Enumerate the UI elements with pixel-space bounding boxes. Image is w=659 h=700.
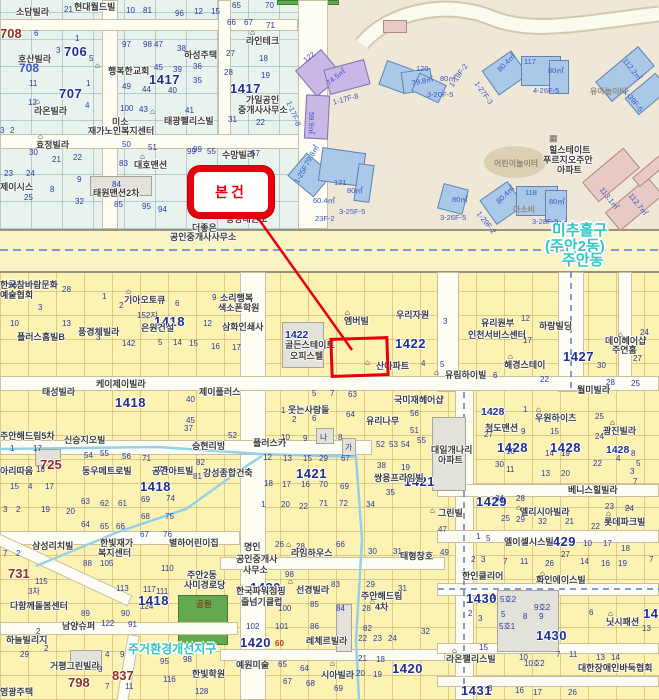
parcel-number: 40 xyxy=(168,87,177,95)
building-name-label: 우원하이츠 xyxy=(535,414,576,423)
building-name-label: 하랑빌딩 xyxy=(539,322,572,331)
parcel-number: 4 xyxy=(85,102,89,110)
parcel-number: 8 xyxy=(523,613,527,621)
parcel-number: 128 xyxy=(195,688,208,696)
parcel-number: 10 xyxy=(583,540,592,548)
parcel-number: 49 xyxy=(122,83,131,91)
parcel-number: 25 xyxy=(595,413,604,421)
parcel-number: 5 xyxy=(158,339,162,347)
parcel-number: 25 xyxy=(501,515,510,523)
parcel-number: 32 xyxy=(538,518,547,526)
parcel-number: 3 xyxy=(481,556,485,564)
unit-area-label: 23F-2 xyxy=(315,215,335,223)
parcel-number: 2 xyxy=(44,645,48,653)
building-name-label: 주안해드림 xyxy=(361,592,402,601)
parcel-number: 71 xyxy=(319,500,328,508)
parcel-number: 21 xyxy=(64,6,73,14)
parcel-number: 52 xyxy=(228,432,237,440)
parcel-number: 21 xyxy=(358,655,367,663)
parcel-number: 17 xyxy=(533,689,542,697)
parcel-number: 9호2 xyxy=(534,604,550,612)
parcel-number: 98 xyxy=(143,41,152,49)
parcel-number: 11 xyxy=(506,466,514,474)
park-label: 공원 xyxy=(196,600,212,609)
building-icon: ⌂ xyxy=(286,541,291,549)
building-name-label: 하늘빌리지 xyxy=(6,636,47,645)
building-name-label: 제이시스 xyxy=(0,183,33,192)
parcel-number: 12 xyxy=(521,315,530,323)
building-name-label: 공인중개사사무소 xyxy=(170,233,236,242)
building-icon: ⌂ xyxy=(150,108,155,116)
building-name-label: 아파트 xyxy=(557,166,582,175)
parcel-number: 7 xyxy=(3,550,7,558)
building-name-label: 대한장애인바둑협회 xyxy=(578,664,653,673)
parcel-number: 85 xyxy=(310,601,319,609)
building-name-label: 소리행복 xyxy=(220,294,253,303)
parcel-number: 55 xyxy=(207,148,216,156)
parcel-number: 18 xyxy=(259,55,268,63)
parcel-number: 2 xyxy=(468,610,472,618)
building-icon: ⌂ xyxy=(330,660,335,668)
unit-area-label: 59.9㎡ xyxy=(308,112,316,134)
parcel-number: 83 xyxy=(119,160,128,168)
parcel-number: 9 xyxy=(539,613,543,621)
building-name-label: 신승지오빌 xyxy=(64,436,105,445)
parcel-number: 5 xyxy=(312,390,316,398)
building-name-label: 사무소 xyxy=(243,566,268,575)
parcel-number: 26 xyxy=(8,282,17,290)
street xyxy=(437,484,659,497)
parcel-number: 3 xyxy=(630,468,634,476)
unit-area-label: 4-26F-5 xyxy=(533,87,559,95)
building-name-label: 시아빌라 xyxy=(321,671,354,680)
block-number: 1428 xyxy=(481,407,504,418)
parcel-number: 5 xyxy=(501,611,505,619)
parcel-number: 1 xyxy=(261,501,265,509)
parcel-number: 28 xyxy=(606,379,615,387)
parcel-number: 4 xyxy=(28,483,32,491)
building-name-label: 레체르빌라 xyxy=(306,637,347,646)
parcel-number: 54 xyxy=(401,441,410,449)
parcel-number: 14 xyxy=(173,339,182,347)
parcel-number: 65 xyxy=(100,523,109,531)
parcel-number: 100 xyxy=(278,605,291,613)
parcel-number: 101 xyxy=(275,623,288,631)
parcel-number: 6 xyxy=(175,300,179,308)
building-name-label: 승현리빙 xyxy=(192,442,225,451)
block-number-red: 798 xyxy=(68,676,90,689)
parcel-number: 6 xyxy=(589,609,593,617)
parcel-number: 52 xyxy=(376,441,385,449)
parcel-number: 94 xyxy=(158,206,167,214)
parcel-number: 15 xyxy=(211,8,220,16)
unit-area-label: 3-26F-5 xyxy=(440,214,466,222)
block-number: 1420 xyxy=(392,662,423,675)
building-icon: ⌂ xyxy=(95,62,100,70)
parcel-number: 4 xyxy=(616,455,620,463)
parcel-number: 18 xyxy=(376,656,385,664)
parcel-number: 29 xyxy=(20,651,29,659)
parcel-number: 19 xyxy=(401,464,410,472)
parcel-number: 27 xyxy=(633,355,642,363)
parcel-number: 115 xyxy=(35,578,48,586)
building-name-label: 푸르지오주안 xyxy=(543,156,593,165)
building-name-label: 웃는사람들 xyxy=(288,406,329,415)
building-name-label: 행복한교회 xyxy=(108,67,149,76)
building-icon: ⌂ xyxy=(610,419,615,427)
parcel-number: 2 xyxy=(471,556,475,564)
building-icon: ⌂ xyxy=(452,647,457,655)
building-name-label: 힐스테이트 xyxy=(549,146,590,155)
building-name-label: 광진빌라 xyxy=(603,427,636,436)
parcel-number: 7 xyxy=(105,683,109,691)
cadastral-map-canvas[interactable]: 소담빌라현대월드빌호산빌라행복한교회하성주택라온빌라미소재가노인복지센터태광펠리… xyxy=(0,0,659,700)
parcel-number: 25 xyxy=(631,380,640,388)
parcel-number: 152지 xyxy=(137,312,158,320)
parcel-number: 15 xyxy=(550,428,559,436)
building-name-label: 대호맨션 xyxy=(134,161,167,170)
block-number: 1421 xyxy=(296,467,327,480)
building-name-label: 주안해드림5차 xyxy=(0,432,55,441)
building-icon: ⌂ xyxy=(536,406,541,414)
parcel-number: 63 xyxy=(81,498,90,506)
building-name-label: 기아오토큐 xyxy=(124,296,165,305)
parcel-number: 15 xyxy=(479,644,488,652)
building-name-label: 아리따움 xyxy=(0,467,33,476)
street xyxy=(618,272,632,378)
building-icon: ⌂ xyxy=(625,503,630,511)
building-name-label: 한빛학원 xyxy=(192,670,225,679)
parcel-number: 24 xyxy=(388,635,397,643)
parcel-number: 71 xyxy=(142,455,151,463)
parcel-number: 13 xyxy=(283,455,292,463)
parcel-number: 81 xyxy=(193,473,202,481)
building-name-label: 라온팰리스빌 xyxy=(446,655,496,664)
building-name-label: 효정빌라 xyxy=(36,141,69,150)
parcel-number: 5호1 xyxy=(499,623,515,631)
unit-area-label: 80㎡ xyxy=(347,187,363,195)
building-name-label: 그린빌 xyxy=(438,509,463,518)
building-name-label: 케이제이빌라 xyxy=(96,380,146,389)
building-name-label: 은원건설 xyxy=(141,324,174,333)
parcel-number: 22 xyxy=(591,523,600,531)
block-number: 1422 xyxy=(395,337,426,350)
parcel-number: 17 xyxy=(33,445,42,453)
building-name-label: 사미경로당 xyxy=(184,581,225,590)
parcel-number: 13 xyxy=(596,654,605,662)
building-name-label: 현대월드빌 xyxy=(74,3,115,12)
block-number: 1417 xyxy=(230,82,261,95)
parcel-number: 28 xyxy=(516,495,525,503)
parcel-number: 36 xyxy=(193,63,202,71)
parcel-number: 5 xyxy=(486,535,490,543)
parcel-number: 1 xyxy=(491,593,495,601)
parcel-number: 21 xyxy=(52,156,61,164)
building-name-label: 색소폰학원 xyxy=(218,304,259,313)
building-name-label: 공인중개사 xyxy=(236,555,277,564)
parcel-number: 10 xyxy=(126,7,135,15)
parcel-number: 98 xyxy=(183,656,192,664)
building-name-label: 유림하이빌 xyxy=(445,371,486,380)
parcel-number: 69 xyxy=(334,685,343,693)
parcel-number: 10호2 xyxy=(524,660,545,668)
parcel-number: 22 xyxy=(256,119,265,127)
parcel-number: 7 xyxy=(503,558,507,566)
unit-area-label: 80㎡ xyxy=(548,67,564,75)
building-name-label: 삼성리치빌 xyxy=(32,542,73,551)
parcel-number: 3 xyxy=(38,304,42,312)
building-name-label: 줄넘기클럽 xyxy=(241,598,282,607)
building-name-label: 영광주택 xyxy=(0,688,33,697)
parcel-number: 66 xyxy=(336,541,345,549)
unit-area-label: 80㎡ xyxy=(549,198,565,206)
unit-area-label: 118 xyxy=(525,189,537,197)
parcel-number: 100 xyxy=(120,105,133,113)
parcel-number: 76 xyxy=(163,531,172,539)
building-name-label: 대일개나리 xyxy=(431,446,472,455)
parcel-number: 2 xyxy=(10,127,14,135)
building-name-label: 한인클리어 xyxy=(462,572,503,581)
parcel-number: 82 xyxy=(196,459,205,467)
parcel-number: 13 xyxy=(62,320,71,328)
parcel-number: 95 xyxy=(160,658,169,666)
building-icon: ⌂ xyxy=(288,578,293,586)
parcel-number: 68 xyxy=(141,513,150,521)
building-icon: ⌂ xyxy=(140,153,145,161)
parcel-number: 73 xyxy=(158,466,167,474)
unit-area-label: 121 xyxy=(334,179,347,187)
facility-label: 어린이놀이터 xyxy=(494,160,538,168)
block-number: 1420 xyxy=(240,636,271,649)
building-icon: ⌂ xyxy=(608,610,613,618)
building-name-label: 베니스힐빌라 xyxy=(568,486,618,495)
parcel-number: 5호2 xyxy=(500,596,516,604)
building-name-label: 제이플러스 xyxy=(199,388,240,397)
parcel-number: 22 xyxy=(593,460,602,468)
parcel-number: 105 xyxy=(100,560,113,568)
building-name-label: 롯데파크빌 xyxy=(604,518,645,527)
parcel-number: 38 xyxy=(377,462,386,470)
building-name-label: 소담빌라 xyxy=(16,8,49,17)
parcel-number: 6 xyxy=(34,30,38,38)
parcel-number: 24 xyxy=(26,170,35,178)
parcel-number: 7 xyxy=(649,556,653,564)
parcel-number: 47 xyxy=(154,41,163,49)
parcel-number: 12 xyxy=(263,454,272,462)
parcel-number: 71 xyxy=(266,22,275,30)
parcel-number: 20 xyxy=(66,508,75,516)
parcel-number: 7 xyxy=(633,478,637,486)
parcel-number: 8 xyxy=(631,450,635,458)
parcel-number: 1 xyxy=(523,406,527,414)
building-icon: ⌂ xyxy=(540,570,545,578)
parcel-number: 19 xyxy=(261,72,270,80)
parcel-number: 10 xyxy=(506,448,515,456)
building-name-label: 오피스텔 xyxy=(290,352,323,361)
building-name-label: 아파트 xyxy=(438,456,463,465)
building-name-label: 라온빌라 xyxy=(34,107,67,116)
building-name-label: 태성빌라 xyxy=(42,388,75,397)
parcel-number: 54 xyxy=(84,452,93,460)
parcel-number: 18 xyxy=(36,466,45,474)
parcel-number: 64 xyxy=(81,521,90,529)
parcel-number: 가 xyxy=(345,444,352,452)
parcel-number: 16 xyxy=(601,560,610,568)
building-name-label: 엘리시아빌라 xyxy=(520,508,570,517)
unit-area-label: 117 xyxy=(524,58,536,66)
parcel-number: 9 xyxy=(303,435,307,443)
building-icon: ⌂ xyxy=(508,353,513,361)
parcel-number: 122 xyxy=(101,620,114,628)
parcel-number: 6 xyxy=(312,415,316,423)
parcel-number: 97 xyxy=(122,41,131,49)
block-number: 706 xyxy=(64,45,87,58)
block-number-red: 731 xyxy=(8,567,30,580)
parcel-number: 18 xyxy=(264,480,273,488)
parcel-number: 3 xyxy=(0,127,4,135)
parcel-number-red: 60 xyxy=(275,640,284,648)
building-name-label: 엘이셀시스빌 xyxy=(504,538,554,547)
parcel-number: 17 xyxy=(523,337,532,345)
parcel-number: 28 xyxy=(296,543,305,551)
parcel-number: 22 xyxy=(299,503,308,511)
parcel-number: 1 xyxy=(476,533,480,541)
unit-area-label: 80㎡ xyxy=(452,196,468,204)
building-name-label: 거평그린빌라 xyxy=(50,662,100,671)
building-name-label: 4차 xyxy=(375,603,388,612)
parcel-number: 2 xyxy=(36,628,40,636)
unit-area-label: 3-28F-5 xyxy=(532,218,558,226)
parcel-number: 38 xyxy=(177,45,186,53)
building-name-label: 유리원부 xyxy=(481,319,514,328)
parcel-number: 82 xyxy=(363,625,372,633)
parcel-number: 16 xyxy=(211,343,220,351)
building-icon: ⌂ xyxy=(126,288,131,296)
block-number: 1418 xyxy=(140,480,171,493)
unit-area-label: 3-25F-5 xyxy=(339,208,365,216)
parcel-number: 8 xyxy=(338,434,342,442)
building-icon: ⌂ xyxy=(430,507,435,515)
building-icon: ⌂ xyxy=(434,369,439,377)
apartment-building-footprint xyxy=(383,20,407,33)
building-icon: ⌂ xyxy=(370,598,375,606)
parcel-number: 1 xyxy=(281,407,285,415)
parcel-number: 45 xyxy=(154,64,163,72)
parcel-number: 31 xyxy=(398,585,407,593)
parcel-number: 29 xyxy=(319,455,328,463)
block-number: 1430 xyxy=(643,607,659,620)
parcel-number: 26 xyxy=(545,560,554,568)
parcel-number: 91 xyxy=(128,621,137,629)
parcel-number: 67 xyxy=(283,678,292,686)
parcel-number: 18 xyxy=(621,545,630,553)
parcel-number: 81 xyxy=(143,7,152,15)
parcel-number: 8 xyxy=(50,186,54,194)
building-name-label: 인천서비스센터 xyxy=(468,331,526,340)
parcel-number: 32 xyxy=(75,198,84,206)
parcel-number: 17 xyxy=(45,483,54,491)
building-name-label: 예술협회 xyxy=(0,291,33,300)
building-name-label: 골든스테이트 xyxy=(285,341,335,350)
parcel-number: 34 xyxy=(495,495,504,503)
parcel-number: 17 xyxy=(282,481,291,489)
parcel-number: 11 xyxy=(29,80,37,88)
building-name-label: 우리자원 xyxy=(396,311,429,320)
parcel-number: 85 xyxy=(114,201,123,209)
parcel-number: 111 xyxy=(156,588,168,596)
building-name-label: 명인 xyxy=(244,543,261,552)
parcel-number: 3 xyxy=(56,47,60,55)
parcel-number: 34 xyxy=(366,501,375,509)
parcel-number: 23 xyxy=(373,635,382,643)
parcel-number: 56 xyxy=(410,410,419,418)
parcel-number: 110 xyxy=(161,565,174,573)
parcel-number: 26 xyxy=(275,541,284,549)
block-number: 708 xyxy=(19,62,39,74)
district-zone-label: 주거환경개선지구 xyxy=(128,643,216,655)
parcel-number: 19 xyxy=(373,671,382,679)
parcel-number: 66 xyxy=(116,523,125,531)
district-name-label: 주안동 xyxy=(562,253,603,268)
parcel-number: 9 xyxy=(77,176,81,184)
parcel-number: 116 xyxy=(163,676,176,684)
parcel-number: 9 xyxy=(212,294,216,302)
building-name-label: 예원미술 xyxy=(236,661,269,670)
parcel-number: 8 xyxy=(488,685,492,693)
district-name-label: 미추홀구 xyxy=(552,223,607,238)
subject-marker-label: 본건 xyxy=(215,182,247,202)
parcel-number: 29 xyxy=(516,516,525,524)
building-name-label: 태원맨션2차 xyxy=(93,189,139,198)
building-name-label: 별하어린이집 xyxy=(169,539,219,548)
parcel-number: 37 xyxy=(184,425,193,433)
parcel-number: 55 xyxy=(100,450,109,458)
parcel-number: 3 xyxy=(478,615,482,623)
unit-area-label: 80㎡ xyxy=(440,75,456,83)
parcel-number: 11 xyxy=(569,651,577,659)
subject-marker-callout[interactable]: 본건 xyxy=(188,166,274,218)
parcel-number: 113 xyxy=(116,585,129,593)
parcel-number: 24 xyxy=(640,329,649,337)
facility-label: 아소비 xyxy=(513,206,535,214)
parcel-number: 31 xyxy=(228,116,237,124)
building-name-label: 남양슈퍼 xyxy=(62,622,95,631)
parcel-number: 15 xyxy=(303,455,312,463)
parcel-number: 35 xyxy=(193,77,202,85)
parcel-number: 16 xyxy=(515,687,524,695)
building-name-label: 선경빌라 xyxy=(296,586,329,595)
parcel-number: 41 xyxy=(185,107,194,115)
parcel-number: 2 xyxy=(16,506,20,514)
parcel-number: 10 xyxy=(281,434,290,442)
building-name-label: 복지센터 xyxy=(98,549,131,558)
parcel-number: 142 xyxy=(122,340,135,348)
building-name-label: 주안2동 xyxy=(187,571,217,580)
parcel-number: 30 xyxy=(368,548,377,556)
parcel-number: 28 xyxy=(224,69,233,77)
building-name-label: 엠버빌 xyxy=(344,317,369,326)
parcel-number: 11 xyxy=(125,683,133,691)
parcel-number: 3 xyxy=(98,666,102,674)
parcel-number: 70 xyxy=(319,481,328,489)
parcel-number: 5 xyxy=(636,460,640,468)
building-name-label: 유리나무 xyxy=(366,417,399,426)
parcel-number: 1 xyxy=(75,35,79,43)
block-number-red: 708 xyxy=(0,27,22,40)
parcel-number: 26 xyxy=(568,689,577,697)
parcel-number: 67 xyxy=(341,455,350,463)
building-icon: ⌂ xyxy=(606,510,611,518)
